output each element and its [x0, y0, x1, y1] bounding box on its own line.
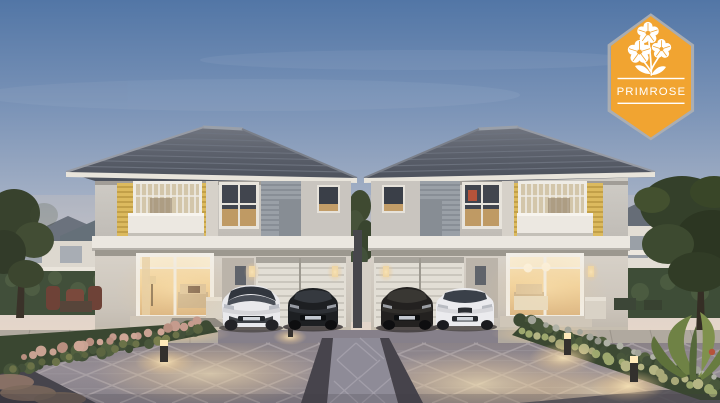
- svg-text:PRIMROSE: PRIMROSE: [617, 86, 687, 98]
